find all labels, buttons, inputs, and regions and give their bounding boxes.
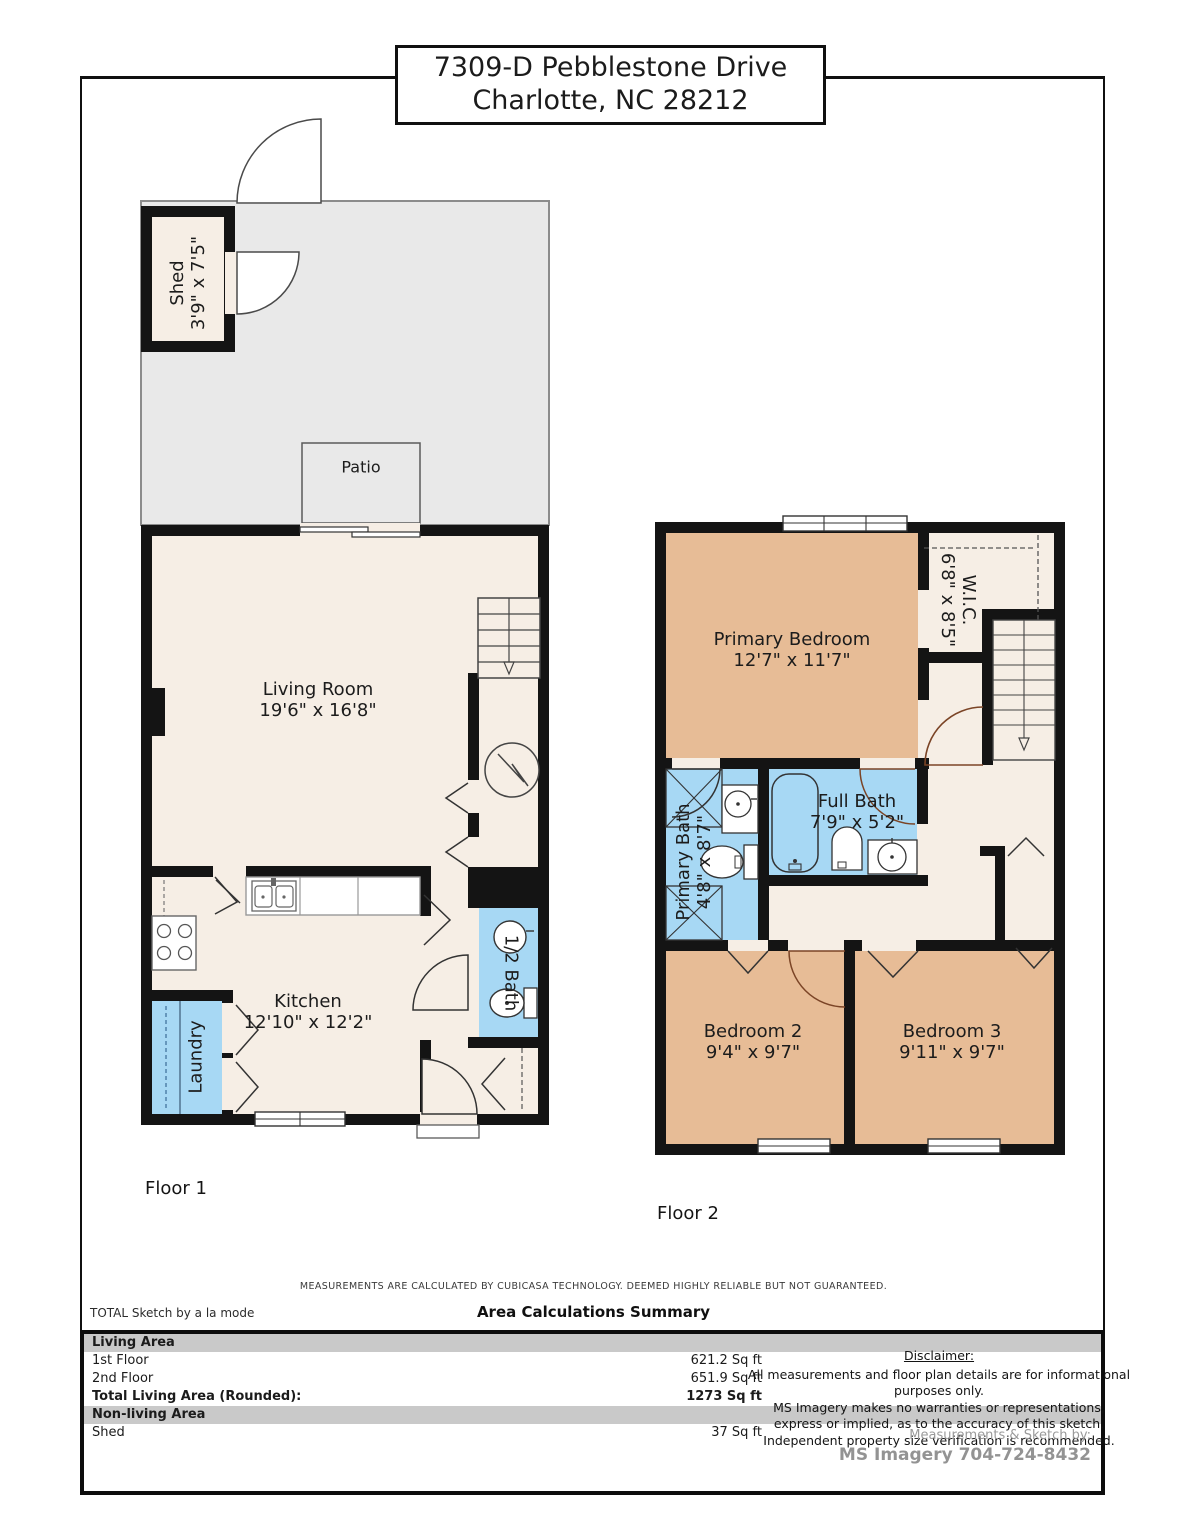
address-line2: Charlotte, NC 28212 [472,85,748,118]
page-border-left [80,76,82,1332]
room-label-half-bath: 1/2 Bath [501,935,522,1012]
summary-title: Area Calculations Summary [0,1303,1187,1321]
floor1-label: Floor 1 [145,1178,207,1199]
measurement-note: MEASUREMENTS ARE CALCULATED BY CUBICASA … [0,1281,1187,1292]
disclaimer-title: Disclaimer: [744,1348,1134,1365]
floor2-label: Floor 2 [657,1203,719,1224]
address-title-box: 7309-D Pebblestone Drive Charlotte, NC 2… [395,45,826,125]
floorplan-page: 7309-D Pebblestone Drive Charlotte, NC 2… [0,0,1187,1536]
water-heater-icon [485,743,539,797]
page-border-top-right [820,76,1105,79]
room-label-shed: Shed 3'9" x 7'5" [167,236,209,330]
address-line1: 7309-D Pebblestone Drive [434,52,788,85]
credit-value: MS Imagery 704-724-8432 [839,1445,1091,1465]
room-label-bedroom2: Bedroom 2 9'4" x 9'7" [704,1021,803,1063]
room-label-living-room: Living Room 19'6" x 16'8" [259,679,376,721]
room-label-bedroom3: Bedroom 3 9'11" x 9'7" [899,1021,1005,1063]
floor1-sliding-door [300,523,420,538]
floor1-stairs [478,598,540,678]
disclaimer-line: MS Imagery makes no warranties or repres… [744,1400,1134,1417]
room-label-kitchen: Kitchen 12'10" x 12'2" [244,991,373,1033]
floor1-window [255,1112,345,1126]
room-label-wic: W.I.C. 6'8" x 8'5" [937,553,979,647]
disclaimer-line: All measurements and floor plan details … [744,1367,1134,1400]
credit-label: Measurements & Sketch by: [839,1428,1091,1443]
room-label-primary-bedroom: Primary Bedroom 12'7" x 11'7" [714,629,871,671]
room-label-full-bath: Full Bath 7'9" x 5'2" [810,791,904,833]
page-border-right [1103,76,1105,1332]
floor2-stairs [993,620,1055,760]
room-label-patio: Patio [341,457,380,478]
credit-block: Measurements & Sketch by: MS Imagery 704… [839,1428,1091,1465]
room-label-primary-bath: Primary Bath 4'8" x 8'7" [673,803,715,920]
area-calculations-table: Living Area 1st Floor 621.2 Sq ft 2nd Fl… [80,1330,1105,1495]
room-label-laundry: Laundry [186,1020,207,1093]
page-border-top-left [80,76,395,79]
